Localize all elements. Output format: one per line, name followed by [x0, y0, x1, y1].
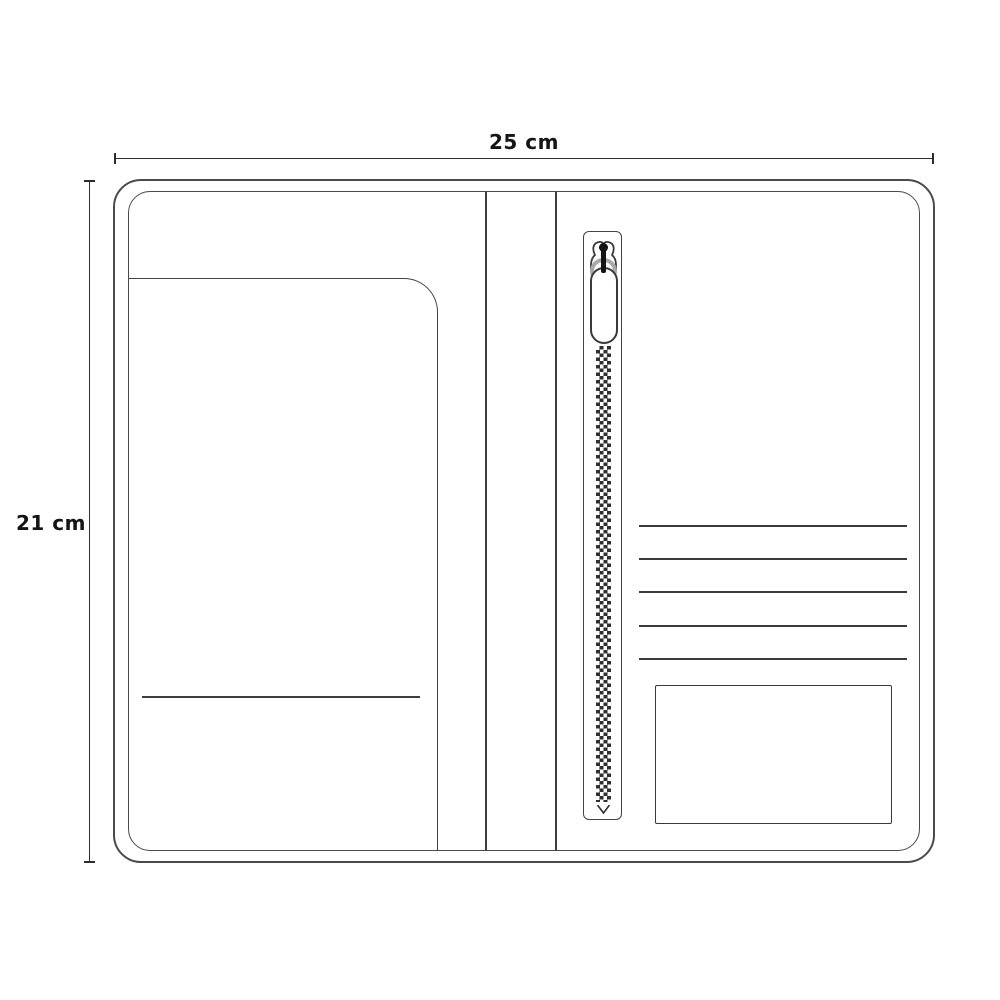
card-slot-line [639, 658, 907, 660]
card-slots [639, 525, 907, 665]
product-dimension-diagram: 25 cm 21 cm [0, 0, 1000, 1000]
zipper-pin-shaft [601, 247, 606, 273]
height-dimension-label: 21 cm [8, 511, 86, 535]
card-slot-line [639, 591, 907, 593]
spine-left-line [485, 192, 487, 851]
width-dimension-tick-left [114, 153, 116, 164]
width-dimension-label: 25 cm [474, 130, 574, 154]
width-dimension-line [115, 158, 933, 159]
width-dimension-tick-right [932, 153, 934, 164]
spine-right-line [555, 192, 557, 851]
height-dimension-tick-top [84, 180, 95, 182]
left-pocket-outline [129, 278, 438, 851]
height-dimension-tick-bottom [84, 861, 95, 863]
bottom-right-pocket-outline [655, 685, 892, 824]
card-slot-line [639, 525, 907, 527]
zipper-pull-tab-icon [590, 267, 618, 344]
card-slot-line [639, 558, 907, 560]
card-slot-line [639, 625, 907, 627]
zipper-teeth-end-icon [596, 800, 611, 810]
height-dimension-line [89, 181, 90, 863]
zipper-teeth [596, 346, 611, 802]
left-pocket-slit-line [142, 696, 420, 698]
